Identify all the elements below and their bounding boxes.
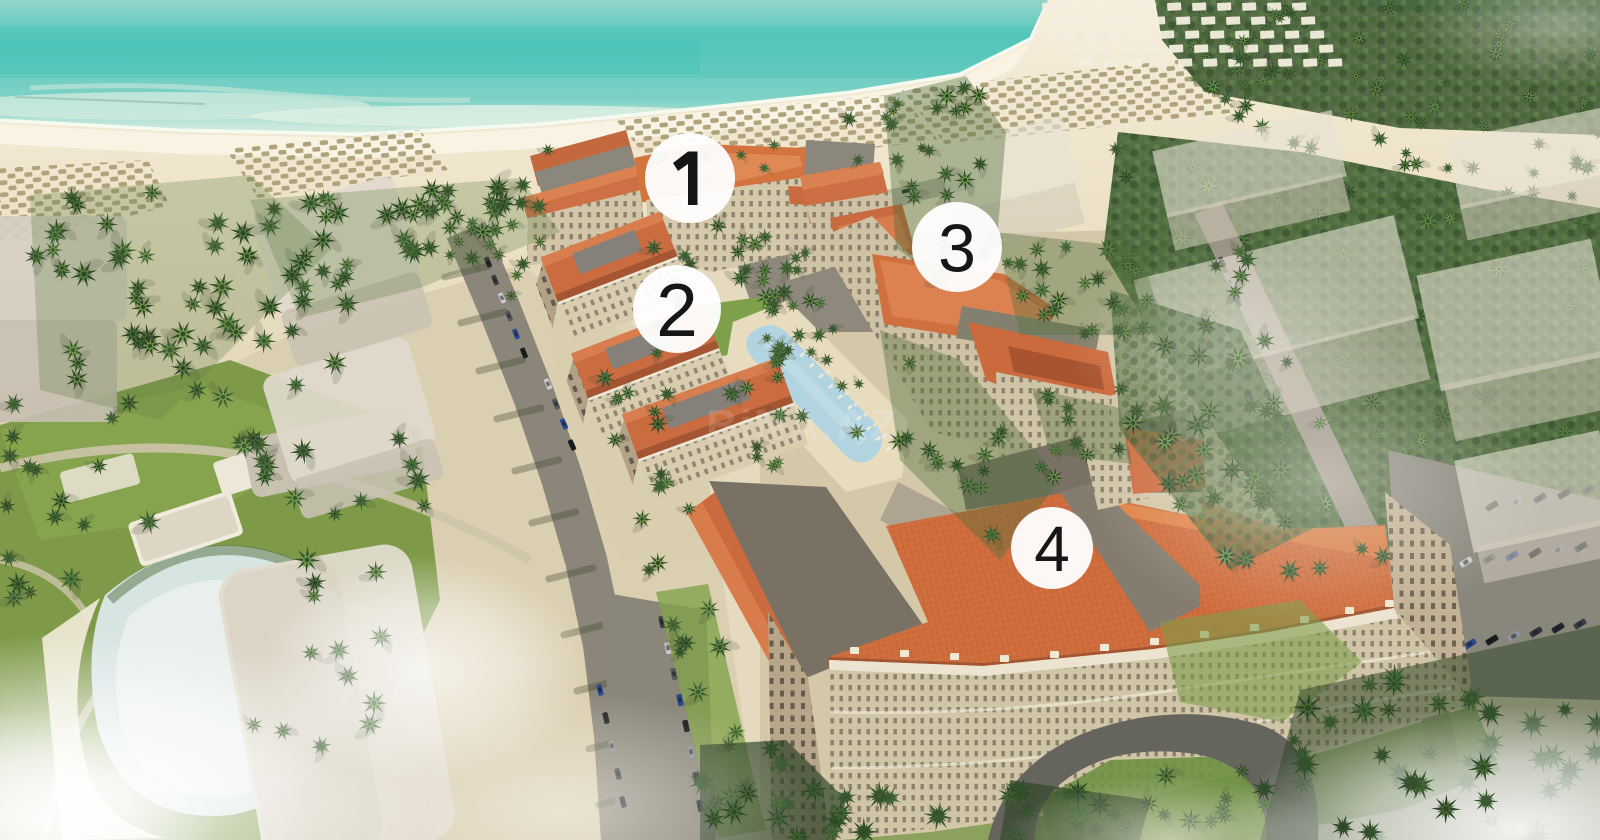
svg-text:2: 2 xyxy=(656,268,698,352)
svg-text:4: 4 xyxy=(1034,513,1070,585)
svg-text:BiNA.AZ: BiNA.AZ xyxy=(706,401,898,450)
svg-text:3: 3 xyxy=(938,210,976,286)
